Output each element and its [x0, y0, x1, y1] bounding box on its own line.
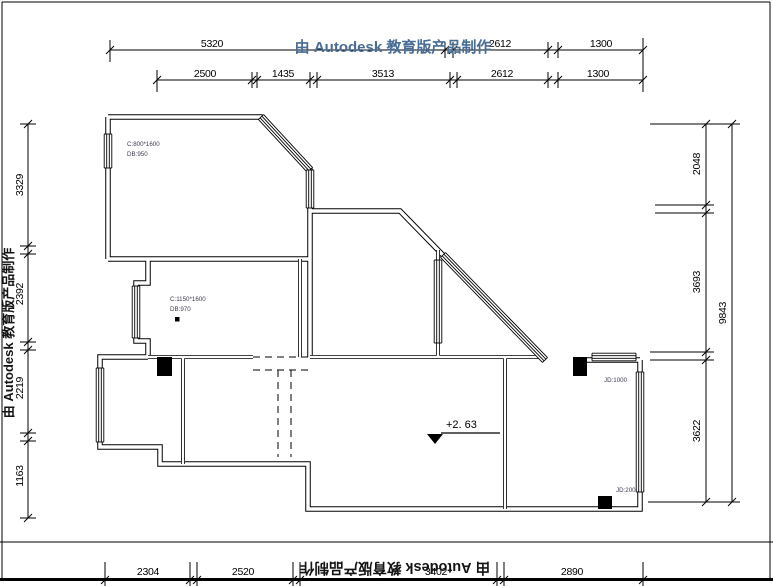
window-room-b-bay — [132, 286, 140, 338]
dim-top-inner-3: 3513 — [372, 68, 395, 80]
room-a-window-spec: C:800*1600 — [127, 141, 160, 148]
watermark-bottom: 由 Autodesk 教育版产品制作 — [299, 559, 490, 577]
window-diagonal — [441, 253, 548, 363]
dim-top-inner-5: 1300 — [587, 68, 610, 80]
room-b-window-sill: DB:970 — [170, 306, 191, 313]
dim-top-outer-3: 1300 — [590, 38, 613, 50]
window-central-vertical — [434, 260, 442, 343]
left-dimension-column: 3329 2392 2219 1163 — [14, 120, 36, 522]
jd-upper-label: JD:1000 — [604, 377, 628, 384]
dim-right-2: 3693 — [691, 270, 703, 293]
watermark-top: 由 Autodesk 教育版产品制作 — [295, 38, 492, 56]
dim-right-total: 9843 — [717, 301, 729, 324]
dim-right-3: 3622 — [691, 419, 703, 442]
dim-bottom-4: 2890 — [561, 566, 584, 578]
page-border — [0, 2, 773, 580]
dim-left-1: 3329 — [14, 173, 26, 196]
cad-floor-plan-screenshot: 5320 2612 1300 2500 1435 3513 2612 1300 … — [0, 0, 773, 586]
dashed-opening — [253, 357, 310, 457]
dim-top-outer-1: 5320 — [201, 38, 224, 50]
dim-top-outer-2: 2612 — [489, 38, 512, 50]
window-right-wall — [636, 372, 644, 492]
wall-piers — [157, 357, 612, 509]
room-b-marker-square — [175, 317, 180, 322]
elevation-value: +2. 63 — [446, 419, 477, 431]
dim-top-inner-2: 1435 — [272, 68, 295, 80]
window-room-a-chamfer — [258, 115, 312, 173]
window-lower-left — [96, 368, 104, 442]
windows — [96, 115, 644, 492]
window-room-a-right — [306, 170, 314, 208]
right-dimension-column: 2048 3693 3622 9843 — [648, 120, 740, 506]
dim-left-4: 1163 — [14, 465, 26, 487]
watermark-left: 由 Autodesk 教育版产品制作 — [1, 248, 16, 418]
dim-bottom-1: 2304 — [137, 566, 160, 578]
elevation-triangle-icon — [427, 434, 443, 444]
room-b-window-spec: C:1150*1600 — [170, 296, 206, 303]
room-a-window-sill: DB:950 — [127, 151, 148, 158]
dim-right-1: 2048 — [691, 152, 703, 175]
jd-lower-label: JD:200 — [616, 487, 636, 494]
dim-top-inner-4: 2612 — [491, 68, 514, 80]
interior-walls — [148, 250, 545, 509]
plan-annotations: C:800*1600 DB:950 C:1150*1600 DB:970 JD:… — [127, 141, 636, 494]
window-room-a-left — [104, 134, 112, 168]
window-right-top — [592, 353, 636, 361]
dim-bottom-2: 2520 — [232, 566, 255, 578]
floor-plan-canvas: 5320 2612 1300 2500 1435 3513 2612 1300 … — [0, 0, 773, 586]
dim-top-inner-1: 2500 — [194, 68, 217, 80]
elevation-marker: +2. 63 — [427, 419, 500, 444]
